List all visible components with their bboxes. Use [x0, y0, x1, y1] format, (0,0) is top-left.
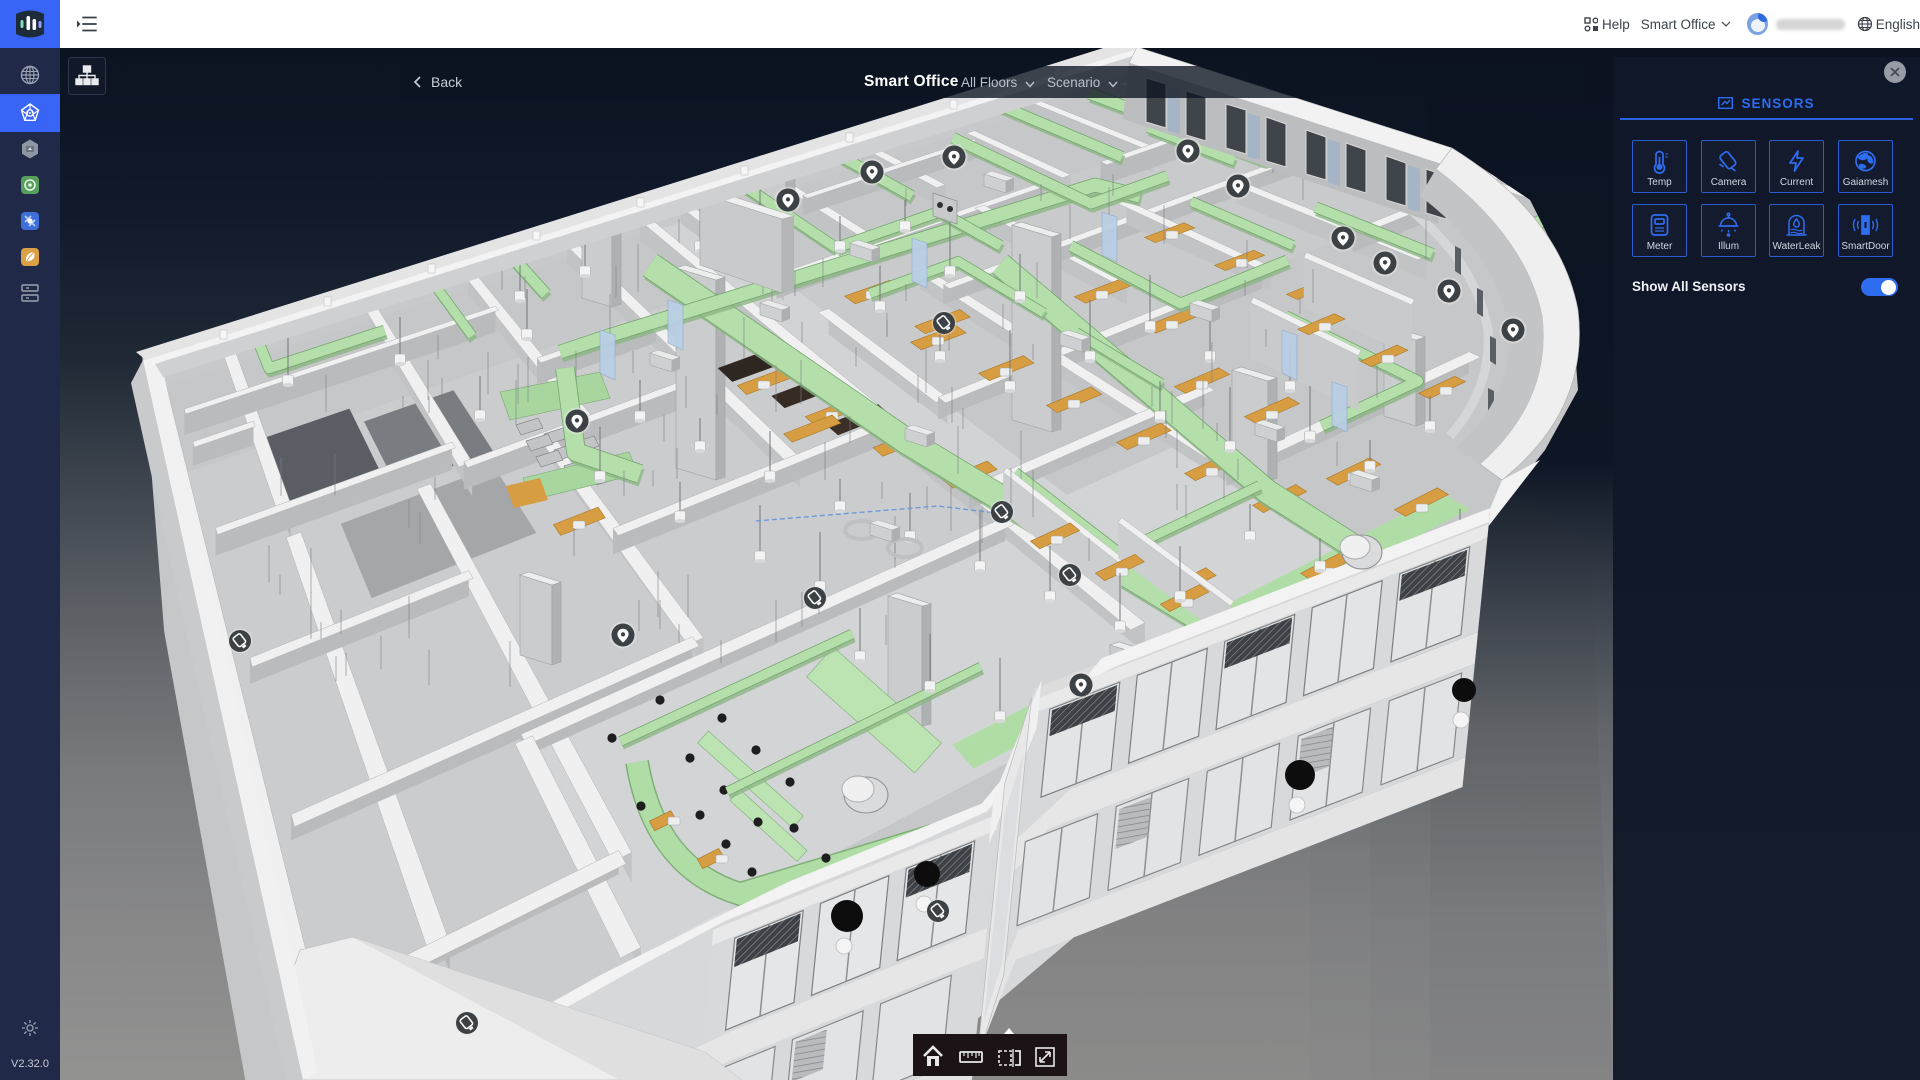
- svg-text:V2.32.0: V2.32.0: [11, 1058, 49, 1070]
